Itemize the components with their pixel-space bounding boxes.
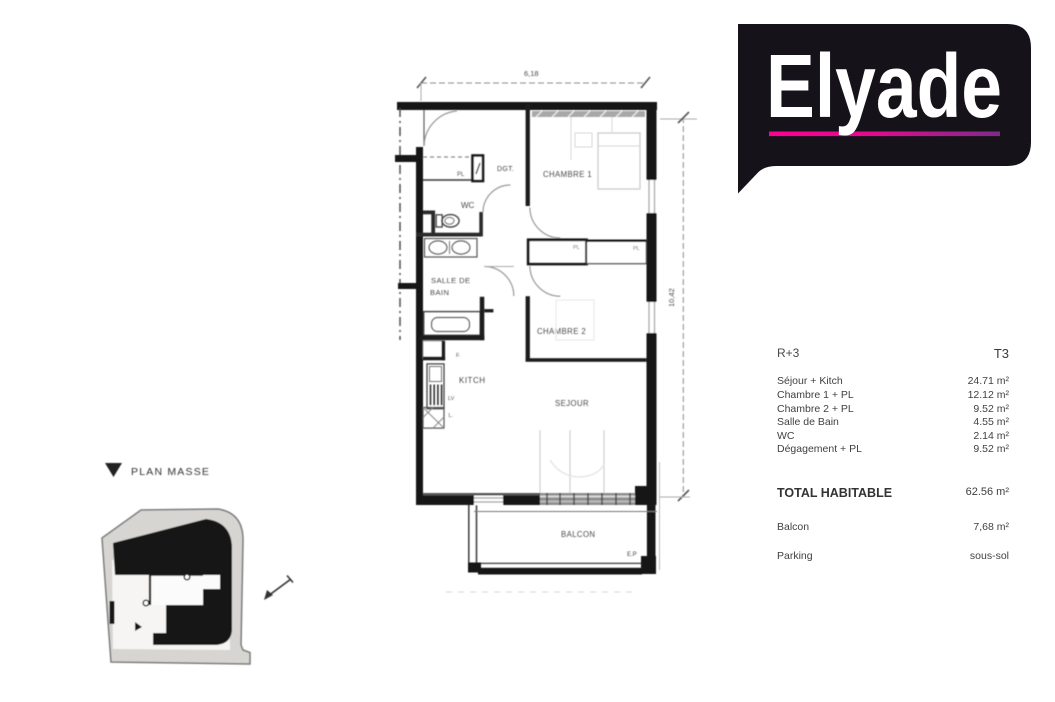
svg-text:LV: LV bbox=[448, 396, 455, 402]
svg-text:PL: PL bbox=[633, 246, 640, 252]
svg-text:PL: PL bbox=[573, 245, 580, 251]
svg-text:PLAN MASSE: PLAN MASSE bbox=[131, 466, 210, 478]
svg-text:6,18: 6,18 bbox=[524, 69, 539, 78]
svg-text:SALLE DE: SALLE DE bbox=[431, 276, 471, 285]
svg-text:BALCON: BALCON bbox=[561, 530, 595, 539]
svg-text:SEJOUR: SEJOUR bbox=[555, 399, 589, 408]
svg-text:Elyade: Elyade bbox=[766, 37, 1002, 137]
svg-text:E.P: E.P bbox=[627, 552, 637, 558]
svg-text:F.: F. bbox=[456, 353, 461, 359]
svg-text:L.: L. bbox=[449, 413, 454, 419]
svg-text:WC: WC bbox=[461, 201, 475, 210]
svg-text:PL: PL bbox=[457, 172, 465, 178]
svg-text:10,42: 10,42 bbox=[667, 288, 676, 307]
svg-text:KITCH: KITCH bbox=[459, 376, 486, 385]
svg-text:CHAMBRE 1: CHAMBRE 1 bbox=[543, 170, 592, 179]
svg-text:BAIN: BAIN bbox=[430, 288, 449, 297]
svg-text:DGT.: DGT. bbox=[497, 166, 514, 173]
svg-text:CHAMBRE 2: CHAMBRE 2 bbox=[537, 327, 586, 336]
